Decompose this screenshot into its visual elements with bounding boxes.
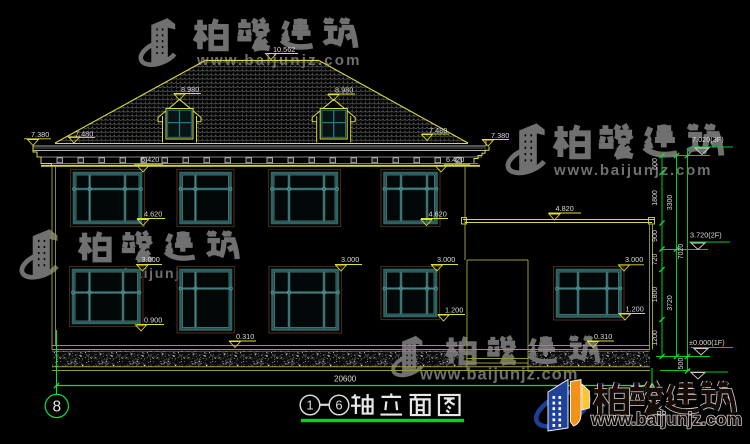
svg-text:4.620: 4.620 xyxy=(429,210,447,219)
svg-text:3.000: 3.000 xyxy=(625,255,643,264)
svg-text:720: 720 xyxy=(652,254,659,266)
svg-text:7.020(3F): 7.020(3F) xyxy=(692,135,724,144)
svg-text:www.baijunjz.com: www.baijunjz.com xyxy=(419,366,578,384)
svg-text:7.380: 7.380 xyxy=(491,131,509,140)
svg-text:1800: 1800 xyxy=(652,287,659,303)
svg-text:3.000: 3.000 xyxy=(142,255,160,264)
svg-text:20600: 20600 xyxy=(334,375,357,384)
svg-text:0.310: 0.310 xyxy=(594,332,612,341)
svg-text:3300: 3300 xyxy=(667,195,674,211)
svg-text:10.562: 10.562 xyxy=(273,45,295,54)
svg-text:8.980: 8.980 xyxy=(181,85,199,94)
svg-text:6: 6 xyxy=(335,397,342,412)
svg-text:3.720(2F): 3.720(2F) xyxy=(690,231,722,240)
svg-text:6.420: 6.420 xyxy=(141,155,159,164)
svg-text:500: 500 xyxy=(678,358,685,370)
svg-text:±0.000(1F): ±0.000(1F) xyxy=(689,338,725,347)
svg-text:600: 600 xyxy=(652,158,659,170)
svg-text:1.200: 1.200 xyxy=(626,305,644,314)
svg-text:3.000: 3.000 xyxy=(437,255,455,264)
svg-text:3.000: 3.000 xyxy=(341,255,359,264)
svg-text:7.380: 7.380 xyxy=(31,130,49,139)
svg-text:0.900: 0.900 xyxy=(144,316,162,325)
svg-text:4.620: 4.620 xyxy=(144,210,162,219)
svg-text:www.baijunjz.com: www.baijunjz.com xyxy=(553,162,712,179)
svg-text:1200: 1200 xyxy=(652,330,659,346)
svg-text:4.820: 4.820 xyxy=(556,204,574,213)
svg-text:www.baijunjz.com: www.baijunjz.com xyxy=(590,409,742,429)
svg-text:8: 8 xyxy=(52,399,61,416)
svg-text:3720: 3720 xyxy=(667,295,674,311)
svg-text:1800: 1800 xyxy=(652,190,659,206)
svg-text:1.200: 1.200 xyxy=(445,306,463,315)
svg-text:8.980: 8.980 xyxy=(335,86,353,95)
svg-text:0.310: 0.310 xyxy=(236,332,254,341)
svg-text:7020: 7020 xyxy=(678,244,685,260)
svg-text:6.420: 6.420 xyxy=(446,155,464,164)
svg-text:900: 900 xyxy=(652,230,659,242)
svg-text:1: 1 xyxy=(306,397,313,412)
